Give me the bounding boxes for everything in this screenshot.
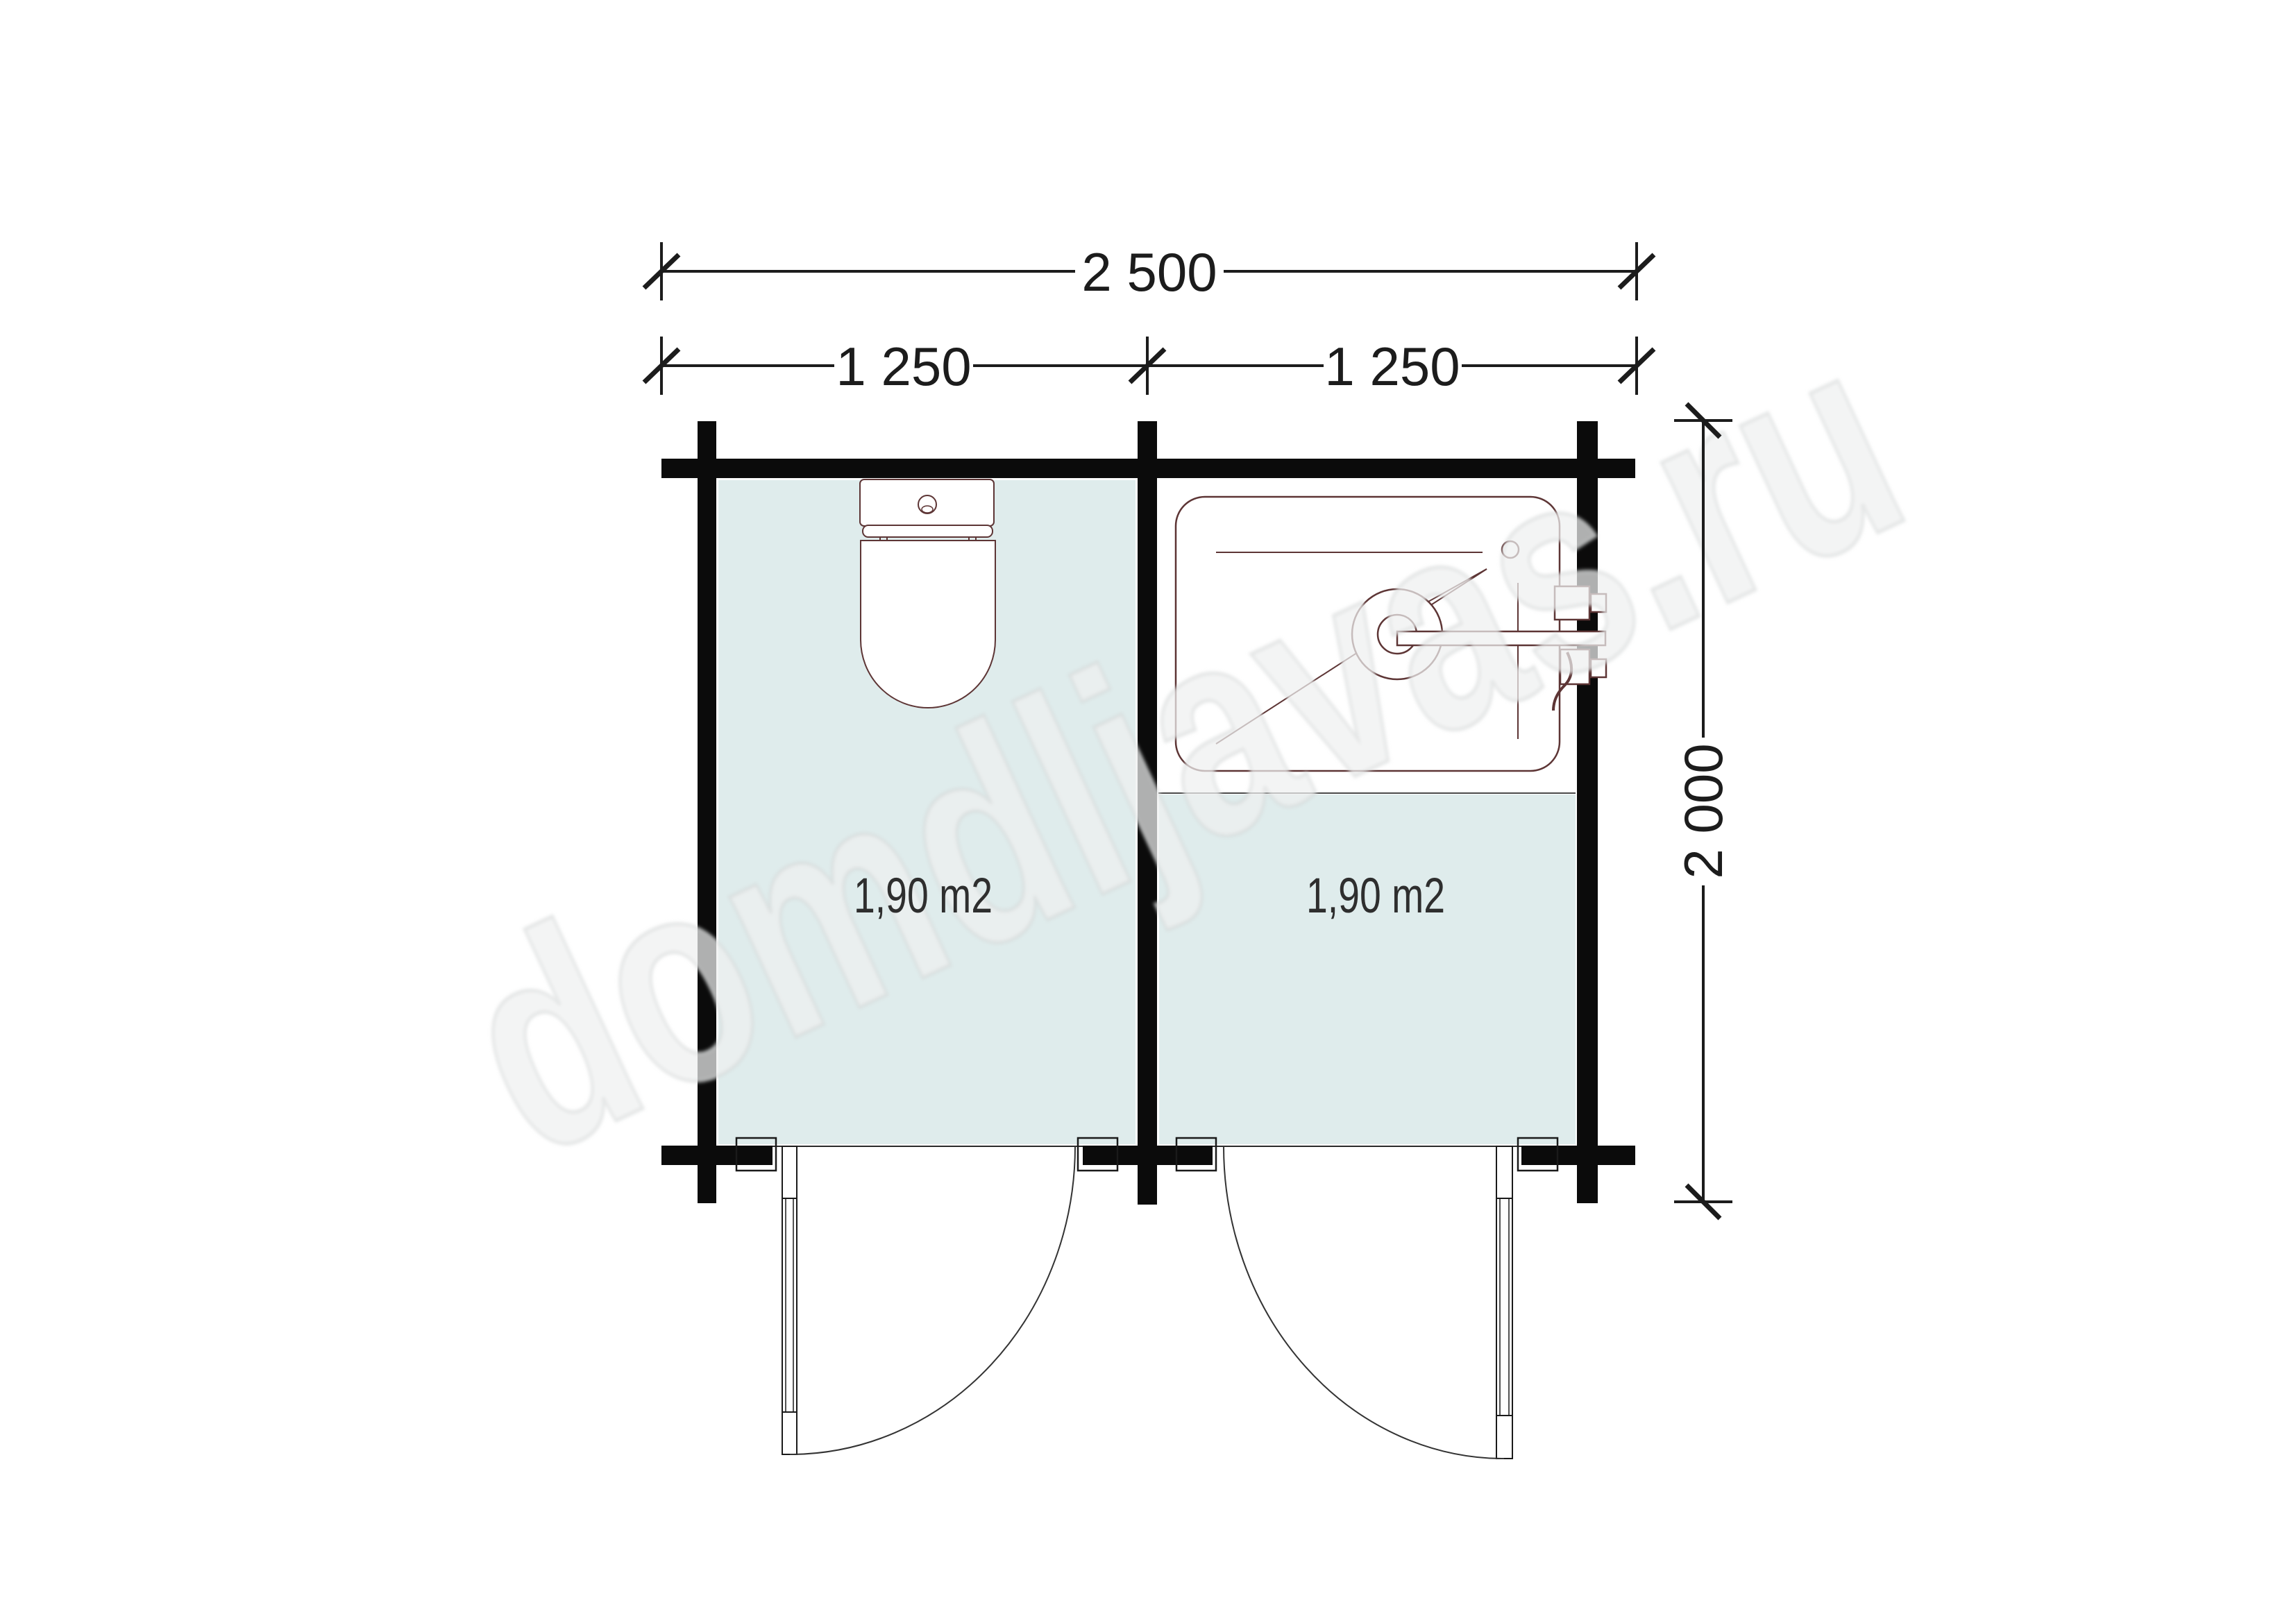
- svg-text:2 000: 2 000: [1673, 743, 1734, 878]
- svg-text:1,90 m2: 1,90 m2: [854, 868, 993, 923]
- svg-text:2 500: 2 500: [1081, 241, 1217, 303]
- svg-text:1 250: 1 250: [836, 336, 971, 397]
- svg-text:1 250: 1 250: [1324, 336, 1460, 397]
- svg-text:1,90 m2: 1,90 m2: [1306, 868, 1445, 923]
